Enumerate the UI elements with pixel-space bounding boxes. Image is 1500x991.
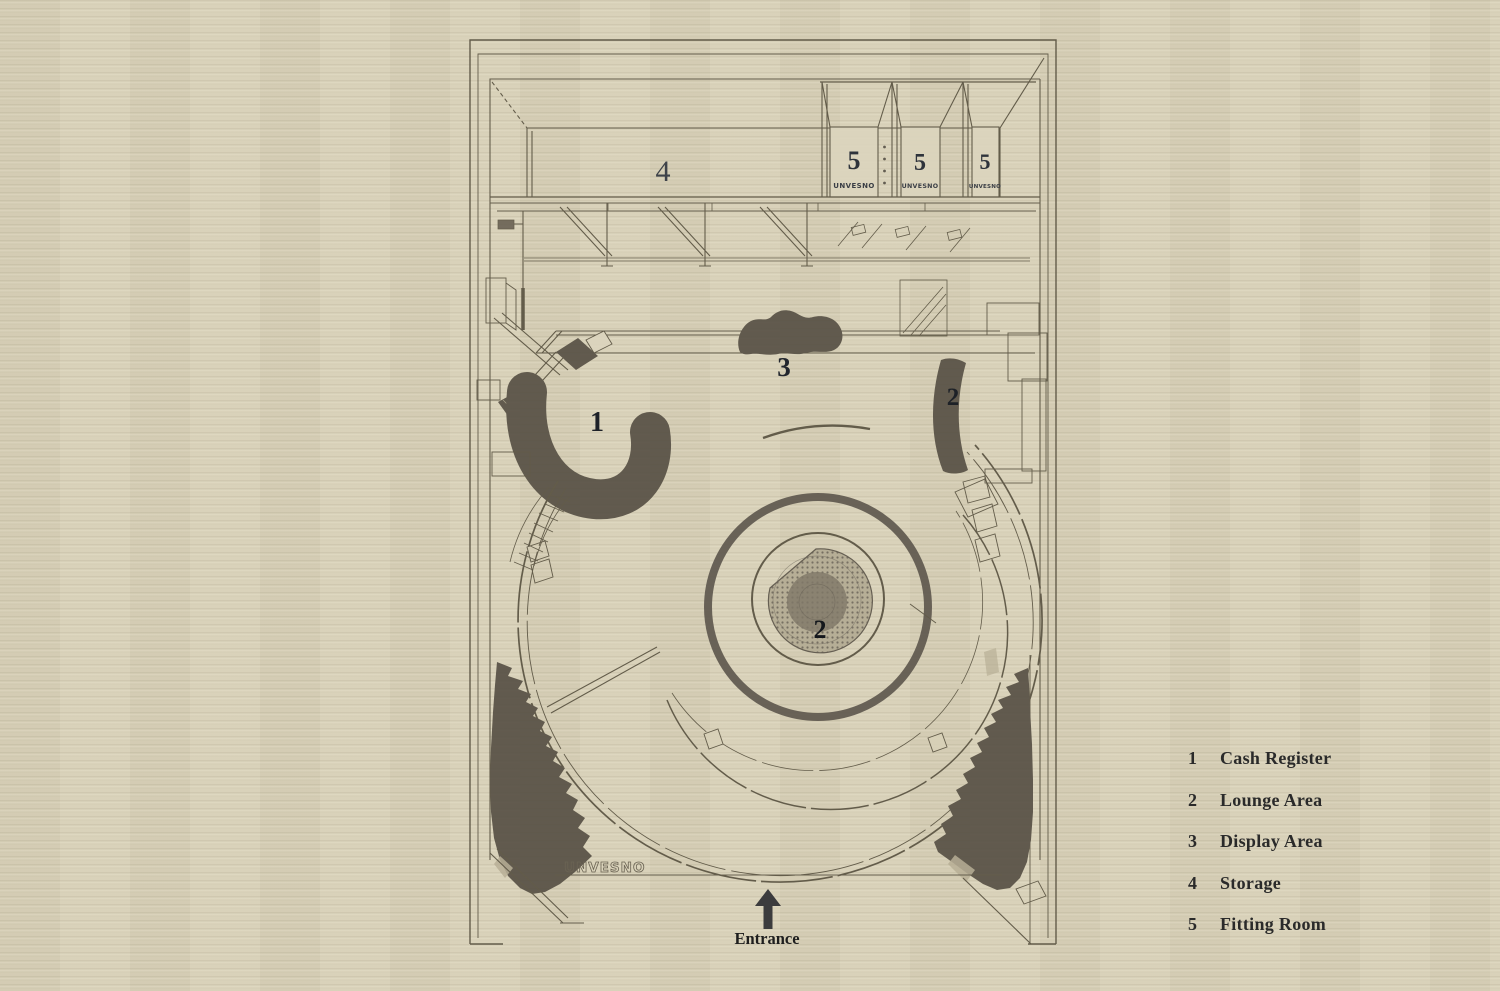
fitting-room-2-number: 5 (914, 150, 926, 176)
floor-plan-canvas: 4 5 5 5 UNVESNO UNVESNO UNVESNO 3 1 2 2 … (0, 0, 1500, 991)
rack-right (934, 668, 1033, 890)
lounge-bench (933, 358, 968, 473)
display-number-label: 3 (777, 352, 791, 382)
fitting-room-3-brand: UNVESNO (969, 184, 1001, 190)
fitting-rooms (820, 82, 1036, 197)
legend-label: Cash Register (1220, 748, 1331, 769)
center-lounge (708, 497, 936, 717)
legend: 1 Cash Register 2 Lounge Area 3 Display … (1188, 748, 1331, 956)
entrance-label: Entrance (734, 929, 799, 948)
legend-number: 2 (1188, 790, 1208, 811)
legend-item-storage: 4 Storage (1188, 873, 1331, 892)
fitting-room-2-brand: UNVESNO (902, 183, 939, 190)
legend-label: Lounge Area (1220, 790, 1322, 811)
legend-number: 4 (1188, 873, 1208, 894)
legend-number: 3 (1188, 831, 1208, 852)
wall-pipe (498, 211, 523, 330)
storefront-brand-text: UNVESNO (564, 860, 645, 876)
lounge-center-number-label: 2 (814, 615, 827, 644)
clothes-rail-arc (763, 426, 870, 438)
storage-shelf (490, 197, 1040, 330)
legend-item-cash-register: 1 Cash Register (1188, 748, 1331, 767)
legend-number: 1 (1188, 748, 1208, 769)
lounge-right-number-label: 2 (947, 384, 960, 411)
display-garment (738, 310, 842, 354)
storage-number-label: 4 (656, 155, 671, 188)
clothing-racks (490, 648, 1033, 894)
legend-number: 5 (1188, 914, 1208, 935)
cash-register (494, 313, 651, 499)
legend-item-display-area: 3 Display Area (1188, 831, 1331, 850)
fitting-room-1-number: 5 (848, 146, 861, 175)
entrance-marker: Entrance (734, 889, 799, 948)
right-railing (900, 280, 947, 336)
legend-label: Storage (1220, 873, 1281, 894)
cash-number-label: 1 (590, 407, 604, 438)
fitting-room-1-brand: UNVESNO (833, 182, 874, 190)
legend-item-lounge-area: 2 Lounge Area (1188, 790, 1331, 809)
entrance-arrow-icon (755, 889, 781, 929)
legend-item-fitting-room: 5 Fitting Room (1188, 914, 1331, 933)
fitting-room-3-number: 5 (980, 149, 991, 174)
legend-label: Fitting Room (1220, 914, 1326, 935)
lounge-right (900, 280, 1047, 517)
fitting-room-divider-dots (883, 146, 886, 185)
cash-counter (526, 392, 651, 499)
legend-label: Display Area (1220, 831, 1323, 852)
